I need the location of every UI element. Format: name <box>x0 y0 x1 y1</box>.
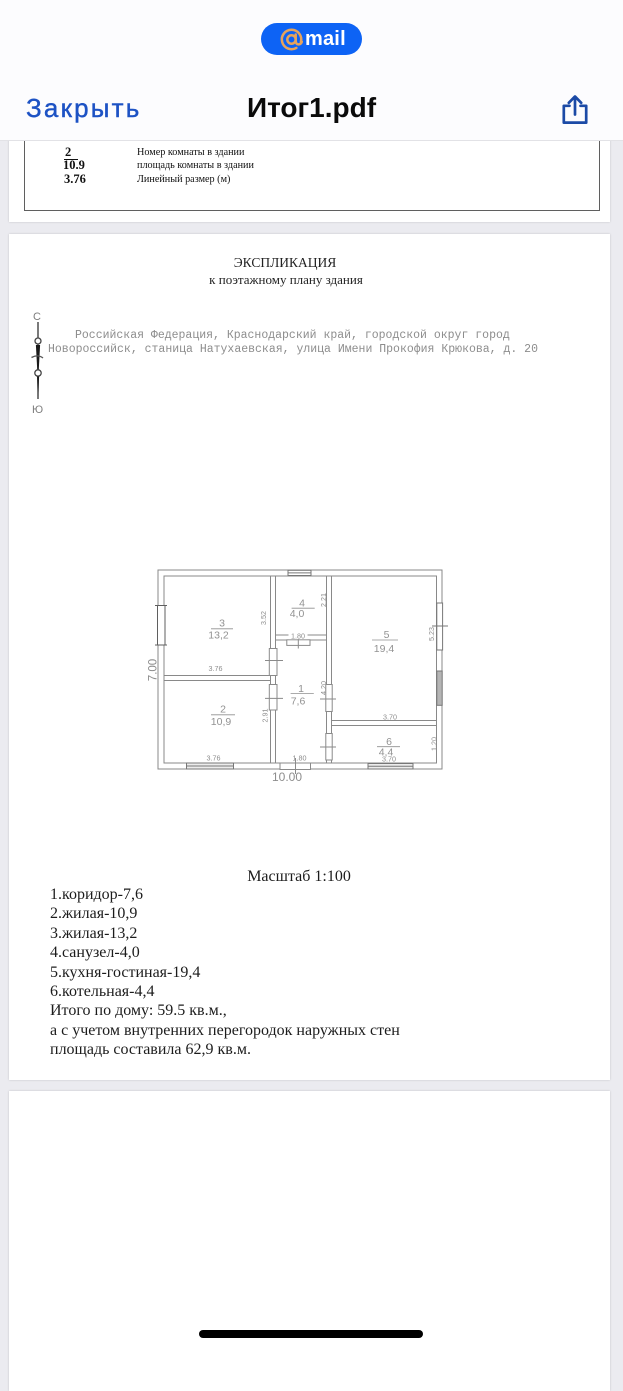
svg-text:7,6: 7,6 <box>291 696 306 708</box>
svg-text:13,2: 13,2 <box>208 630 229 642</box>
svg-text:1.80: 1.80 <box>291 632 305 641</box>
svg-text:7.00: 7.00 <box>148 659 160 681</box>
svg-text:2.21: 2.21 <box>319 593 328 607</box>
svg-text:19,4: 19,4 <box>374 643 395 655</box>
svg-text:10,9: 10,9 <box>211 716 232 728</box>
svg-text:3.76: 3.76 <box>207 754 221 763</box>
svg-text:3.52: 3.52 <box>259 611 268 625</box>
svg-text:5.23: 5.23 <box>427 627 436 641</box>
svg-text:5: 5 <box>384 629 390 641</box>
svg-text:3.70: 3.70 <box>383 713 397 722</box>
svg-text:2.91: 2.91 <box>260 709 269 723</box>
svg-text:С: С <box>33 311 41 323</box>
svg-text:4,0: 4,0 <box>290 608 305 620</box>
svg-text:3.76: 3.76 <box>209 664 223 673</box>
svg-text:2: 2 <box>220 704 226 716</box>
svg-text:1.80: 1.80 <box>293 754 307 763</box>
svg-text:10.00: 10.00 <box>272 770 302 784</box>
svg-text:4.20: 4.20 <box>319 681 328 695</box>
svg-text:1.20: 1.20 <box>429 737 438 751</box>
svg-text:3: 3 <box>219 618 225 630</box>
svg-text:3.70: 3.70 <box>382 755 396 764</box>
svg-text:Ю: Ю <box>32 404 43 416</box>
